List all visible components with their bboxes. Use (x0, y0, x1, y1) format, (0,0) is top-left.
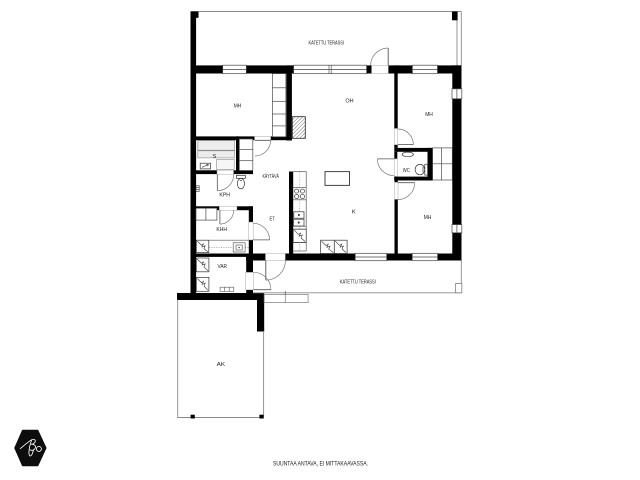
svg-text:WC: WC (403, 168, 410, 174)
svg-text:KATETTU TERASSI: KATETTU TERASSI (309, 40, 345, 46)
svg-text:KPH: KPH (219, 192, 230, 198)
svg-text:MH: MH (425, 112, 433, 118)
svg-text:OH: OH (345, 98, 353, 104)
svg-text:KÄYTÄVÄ: KÄYTÄVÄ (263, 173, 279, 180)
svg-text:MH: MH (424, 215, 432, 221)
svg-text:S: S (213, 154, 217, 160)
svg-text:K: K (352, 210, 356, 216)
svg-text:ET: ET (270, 217, 276, 223)
svg-text:VAR: VAR (218, 264, 228, 270)
svg-text:MH: MH (234, 104, 242, 110)
svg-text:AK: AK (217, 362, 226, 368)
svg-text:KATETTU TERASSI: KATETTU TERASSI (340, 280, 376, 286)
svg-text:SUUNTAA ANTAVA, EI MITTAKAAVAS: SUUNTAA ANTAVA, EI MITTAKAAVASSA. (273, 462, 368, 468)
svg-text:KHH: KHH (216, 227, 227, 233)
